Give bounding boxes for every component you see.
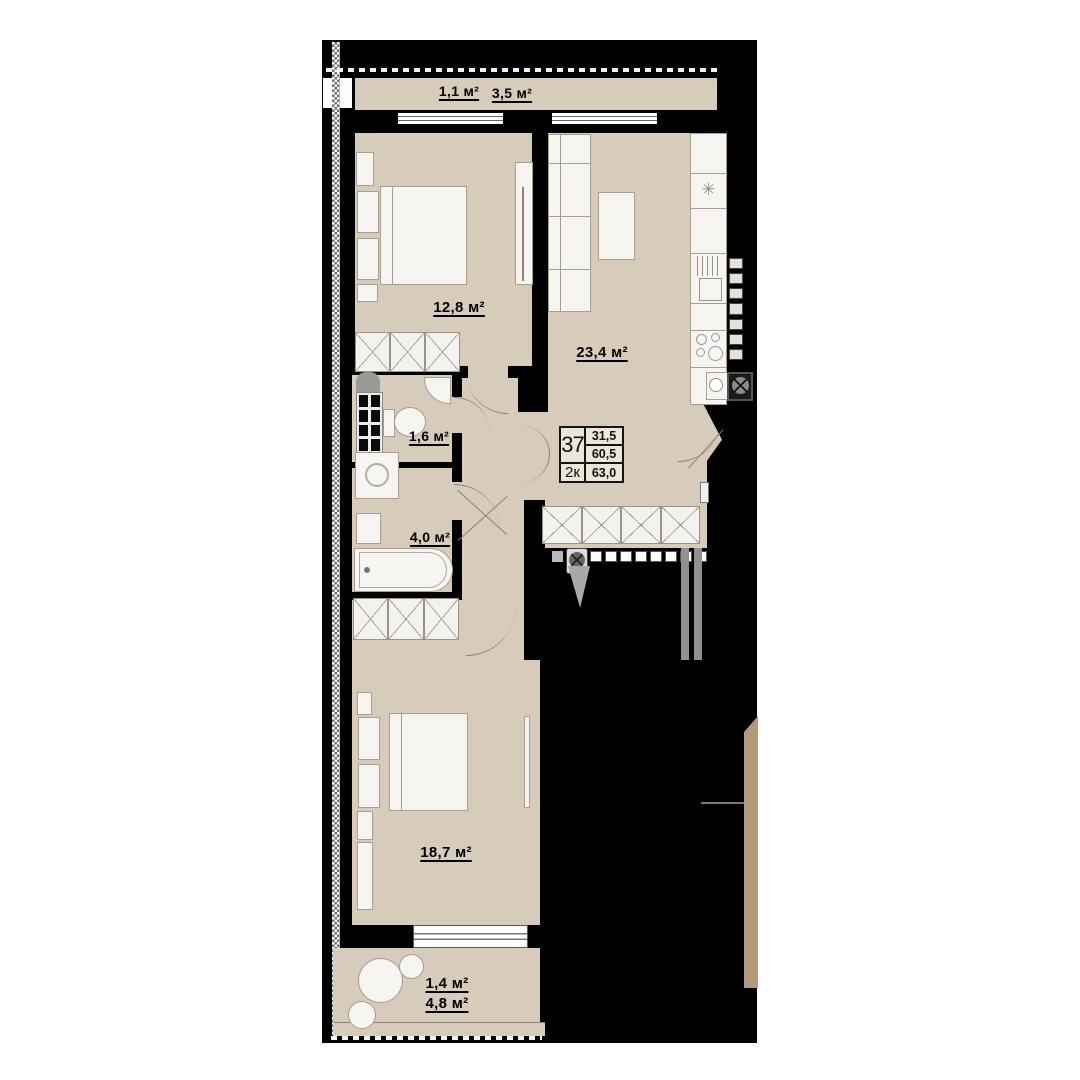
bathtub-inner-line [359,552,447,588]
exterior-vent-fan-icon [732,377,749,394]
wall-stub-hall-living [518,368,548,412]
wardrobe-cell [355,332,390,372]
area-label-balcony-top-small: 1,1 м² [439,83,479,99]
cabinet [356,152,374,186]
area-label-balcony-bottom: 4,8 м² [426,995,469,1012]
unit-info-table: 37 31,5 60,5 2к 63,0 [559,426,624,483]
core-gray-square [552,551,563,562]
table [598,192,635,260]
facade-dashed-line-top [326,68,718,72]
shaft-strip [681,548,689,660]
bed-headboard-line [401,714,402,810]
dresser [357,811,373,840]
shaft-strip [694,548,702,660]
window-bedroom-bottom [413,925,528,948]
window-living [552,113,657,124]
wardrobe-corridor [542,506,700,544]
area-label-balcony-top: 3,5 м² [492,85,532,101]
facade-hatch-strip [332,42,340,1035]
fridge-icon: ✳ [690,178,727,202]
bed-double [380,186,467,285]
mirror-line [522,187,524,281]
stove-burner [711,333,720,342]
bath-sink [356,513,381,544]
closet [515,162,533,285]
stove-burner [708,346,723,361]
nightstand [358,764,380,808]
wardrobe-cell [425,332,460,372]
corner-sofa [548,134,591,312]
cabinet [357,692,372,715]
ventilation-fan-icon [569,552,585,568]
bed-headboard-line [392,187,393,284]
floor-plan: ✳ [0,0,1080,1080]
unit-rooms-type: 2к [561,464,584,481]
counter-divider [691,367,726,368]
mirror [524,716,530,808]
unit-area-living: 31,5 [586,428,622,444]
wardrobe-cell [542,506,582,544]
unit-number: 37 [561,428,584,462]
counter-divider [691,330,726,331]
kitchen-sink-square [699,278,722,301]
wardrobe-cell [582,506,622,544]
area-label-bathroom: 4,0 м² [410,529,450,545]
wardrobe-cell [388,598,423,640]
facade-tile-column [729,258,743,360]
sofa-divider [549,163,590,164]
area-label-balcony-bottom-small: 1,4 м² [426,975,469,992]
sofa-divider [549,269,590,270]
balcony-plant-medium [399,954,424,979]
stove-burner [696,334,707,345]
stove-burner [696,348,705,357]
area-label-bedroom-top: 12,8 м² [433,299,485,316]
utility-shaft [356,392,383,454]
core-window-squares [590,551,707,562]
area-label-bedroom-bottom: 18,7 м² [420,844,472,861]
balcony-plant-small [348,1001,376,1029]
dresser [357,842,373,910]
area-label-wc: 1,6 м² [409,428,449,444]
water-heater [356,372,380,392]
unit-area-main: 60,5 [586,446,622,462]
room-balcony-top [355,78,717,110]
entrance-door-leaf [700,482,709,503]
wardrobe-cell [621,506,661,544]
washing-machine-door [365,463,389,487]
unit-area-total: 63,0 [586,464,622,481]
sofa-back-line [560,135,561,311]
adjacent-section-strip [744,716,758,988]
dish-drainer [697,256,722,276]
counter-divider [691,173,726,174]
balcony-plant-large [358,958,403,1003]
cabinet [357,284,378,302]
wardrobe-bathroom-side [353,598,459,640]
wardrobe-cell [390,332,425,372]
sofa-divider [549,216,590,217]
counter-divider [691,303,726,304]
nightstand [358,717,380,760]
window-bedroom-top [398,113,503,124]
nightstand [357,238,379,280]
counter-divider [691,208,726,209]
wardrobe-cell [424,598,459,640]
counter-divider [691,253,726,254]
area-label-living-kitchen: 23,4 м² [576,344,628,361]
bath-faucet [364,567,370,573]
wardrobe-cell [353,598,388,640]
wardrobe-cell [661,506,701,544]
nightstand [357,191,379,233]
kitchen-wash-sink-bowl [709,378,723,392]
section-divider-line [701,802,744,804]
wardrobe-bedroom-top [355,332,460,372]
facade-dashed-line-bottom [331,1036,542,1040]
